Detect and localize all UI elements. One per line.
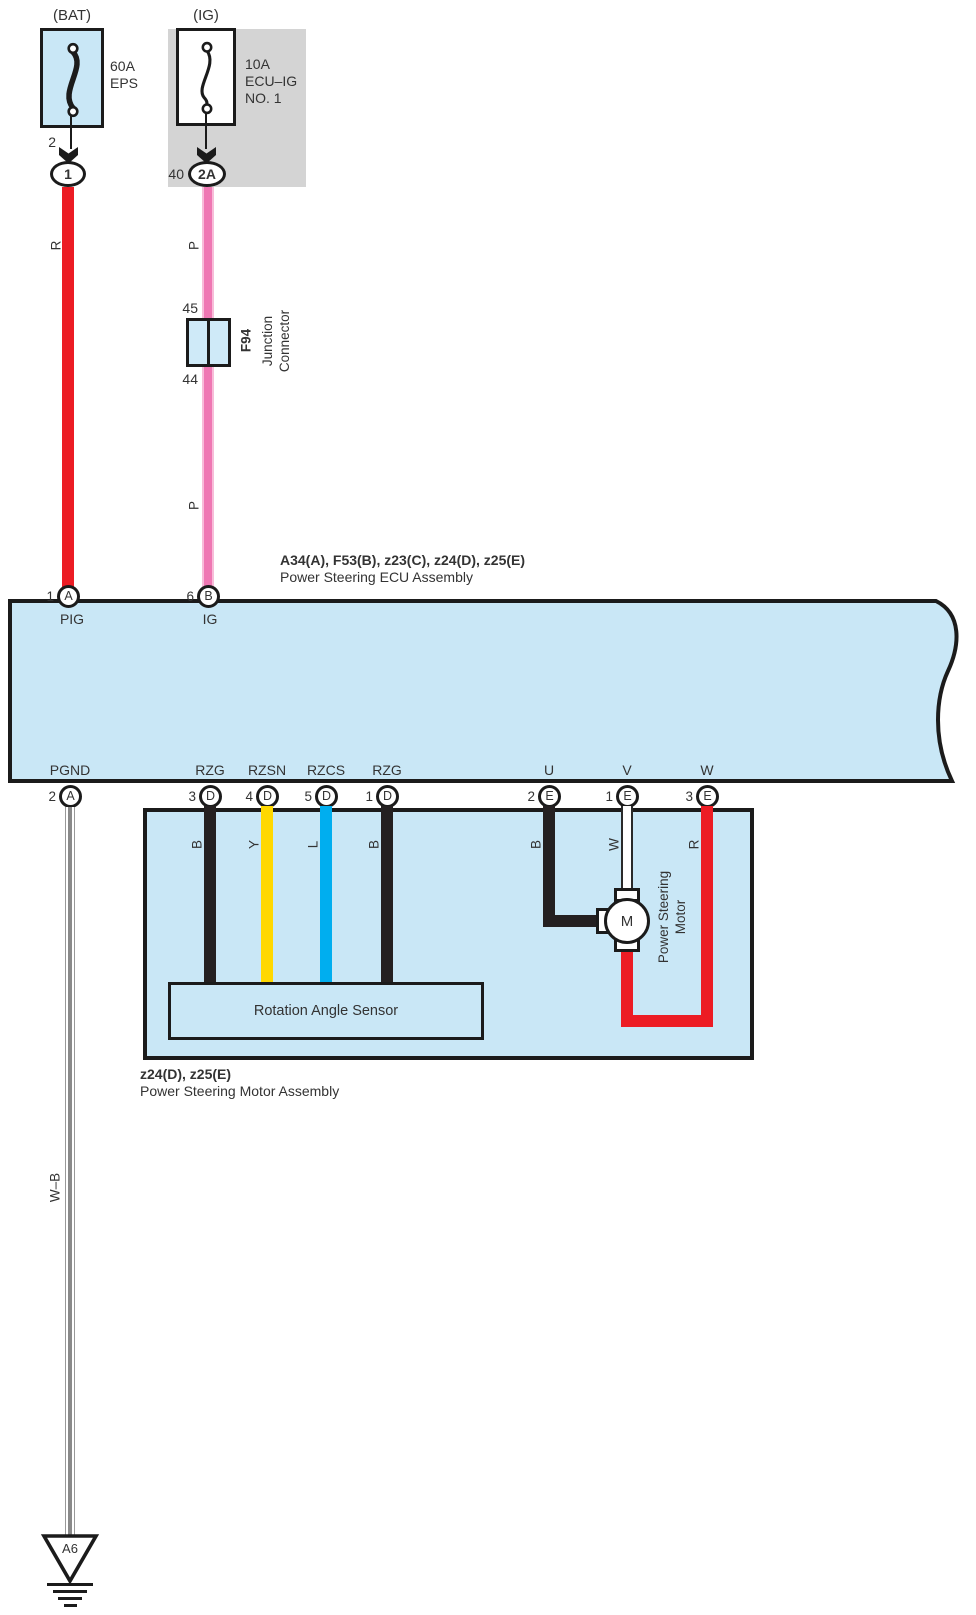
ig-connector-oval: 2A [188, 161, 226, 187]
pin-number: 1 [605, 789, 613, 804]
motor-label: Power Steering Motor [655, 861, 689, 973]
wire-color-label: B [366, 825, 383, 865]
wire-color-label: Y [246, 825, 263, 865]
wire-color-label-p-upper: P [186, 226, 203, 266]
ecu-signal-ig: IG [178, 611, 242, 627]
wire-red-w-horizontal [621, 1015, 713, 1027]
pin-number: 2 [527, 789, 535, 804]
ig-connector-pin-number: 40 [164, 166, 184, 183]
connector-letter: E [696, 785, 719, 808]
pin-number: 1 [365, 789, 373, 804]
bat-fuse-box [40, 28, 104, 128]
motor-assembly-name: Power Steering Motor Assembly [140, 1083, 339, 1100]
fuse-icon [192, 38, 222, 118]
ig-fuse-name-line2: NO. 1 [245, 90, 282, 107]
pin-number: 5 [304, 789, 312, 804]
wiring-diagram: (BAT) 60A EPS 2 1 R (IG) 10A ECU–IG NO. … [0, 0, 976, 1615]
connector-letter: A [57, 585, 80, 608]
ig-fuse-box [176, 28, 236, 126]
rotation-angle-sensor-label: Rotation Angle Sensor [254, 1003, 398, 1019]
junction-name-line1: Junction [259, 301, 276, 381]
bat-fuse-pin-number: 2 [40, 134, 56, 151]
wire-white-v [621, 806, 633, 890]
bat-source-label: (BAT) [30, 7, 114, 24]
wire-wb-ground [65, 807, 75, 1538]
ecu-signal-v: V [595, 762, 659, 778]
junction-name: Junction Connector [259, 301, 293, 381]
ecu-pin-v: 1 E [587, 784, 639, 808]
ecu-pin-w: 3 E [667, 784, 719, 808]
bat-fuse-name: EPS [110, 75, 138, 92]
wire-black-u-vertical [543, 806, 555, 927]
bat-connector-oval: 1 [50, 161, 86, 187]
wire-color-label: W [606, 825, 623, 865]
fuse-icon [58, 39, 88, 121]
connector-letter: B [197, 585, 220, 608]
connector-letter: D [315, 785, 338, 808]
connector-letter: E [616, 785, 639, 808]
connector-letter: D [256, 785, 279, 808]
ecu-pin-ig: 6 B [168, 584, 220, 608]
ecu-signal-rzcs: RZCS [294, 762, 358, 778]
ig-fuse-name-line1: ECU–IG [245, 73, 297, 90]
junction-connector-box [186, 318, 231, 367]
wire-yellow-rzsn [261, 806, 273, 986]
connector-letter: E [538, 785, 561, 808]
wire-color-label: B [528, 825, 545, 865]
ecu-signal-u: U [517, 762, 581, 778]
ecu-signal-pig: PIG [40, 611, 104, 627]
ecu-signal-pgnd: PGND [38, 762, 102, 778]
ecu-signal-rzg1: RZG [178, 762, 242, 778]
junction-pin-out: 44 [174, 371, 198, 388]
wire-color-label: B [189, 825, 206, 865]
ecu-connector-codes: A34(A), F53(B), z23(C), z24(D), z25(E) [280, 552, 525, 569]
wire-red-to-motor [621, 948, 633, 1027]
ecu-signal-rzsn: RZSN [235, 762, 299, 778]
ig-fuse-lead-line [205, 113, 207, 149]
ecu-signal-rzg2: RZG [355, 762, 419, 778]
wire-color-label-p-lower: P [186, 486, 203, 526]
motor-label-line1: Power Steering [655, 861, 672, 973]
wire-red-w-vertical [701, 806, 713, 1027]
ecu-pin-rzg2: 1 D [347, 784, 399, 808]
ig-fuse-rating: 10A [245, 56, 270, 73]
ground-hatch-line [53, 1590, 87, 1593]
ground-hatch-line [64, 1604, 77, 1607]
pin-number: 2 [48, 789, 56, 804]
pin-number: 1 [46, 589, 54, 604]
ground-hatch-line [58, 1597, 82, 1600]
pin-number: 3 [685, 789, 693, 804]
ground-hatch-line [47, 1583, 93, 1586]
wire-color-label-r: R [48, 226, 65, 266]
wire-color-label: R [686, 825, 703, 865]
pin-number: 6 [186, 589, 194, 604]
wire-color-label-wb: W–B [47, 1168, 64, 1208]
ecu-pin-rzg1: 3 D [170, 784, 222, 808]
ecu-signal-w: W [675, 762, 739, 778]
ecu-pin-rzsn: 4 D [227, 784, 279, 808]
ground-point-id: A6 [40, 1540, 100, 1557]
pin-number: 3 [188, 789, 196, 804]
wire-blue-rzcs [320, 806, 332, 986]
junction-name-line2: Connector [276, 301, 293, 381]
motor-assembly-connector-codes: z24(D), z25(E) [140, 1066, 231, 1083]
pin-number: 4 [245, 789, 253, 804]
junction-connector-cells [189, 321, 228, 364]
wire-color-label: L [305, 825, 322, 865]
ecu-box [0, 593, 976, 793]
motor-label-line2: Motor [672, 861, 689, 973]
ecu-pin-pig: 1 A [28, 584, 80, 608]
connector-letter: A [59, 785, 82, 808]
wire-pink-ig-to-ecu [202, 187, 214, 589]
bat-fuse-lead-line [70, 115, 72, 149]
ecu-pin-pgnd-bottom: 2 A [30, 784, 82, 808]
ecu-pin-rzcs: 5 D [286, 784, 338, 808]
connector-letter: D [376, 785, 399, 808]
junction-pin-in: 45 [174, 300, 198, 317]
connector-letter: D [199, 785, 222, 808]
wire-black-rzg2 [381, 806, 393, 986]
rotation-angle-sensor-box: Rotation Angle Sensor [168, 982, 484, 1040]
ecu-name: Power Steering ECU Assembly [280, 569, 473, 586]
junction-code: F94 [238, 321, 255, 361]
ecu-pin-u: 2 E [509, 784, 561, 808]
wire-black-u-horizontal [543, 915, 601, 927]
wire-black-rzg1 [204, 806, 216, 986]
ig-source-label: (IG) [168, 7, 244, 24]
motor-icon: M [604, 898, 650, 944]
bat-fuse-rating: 60A [110, 58, 135, 75]
